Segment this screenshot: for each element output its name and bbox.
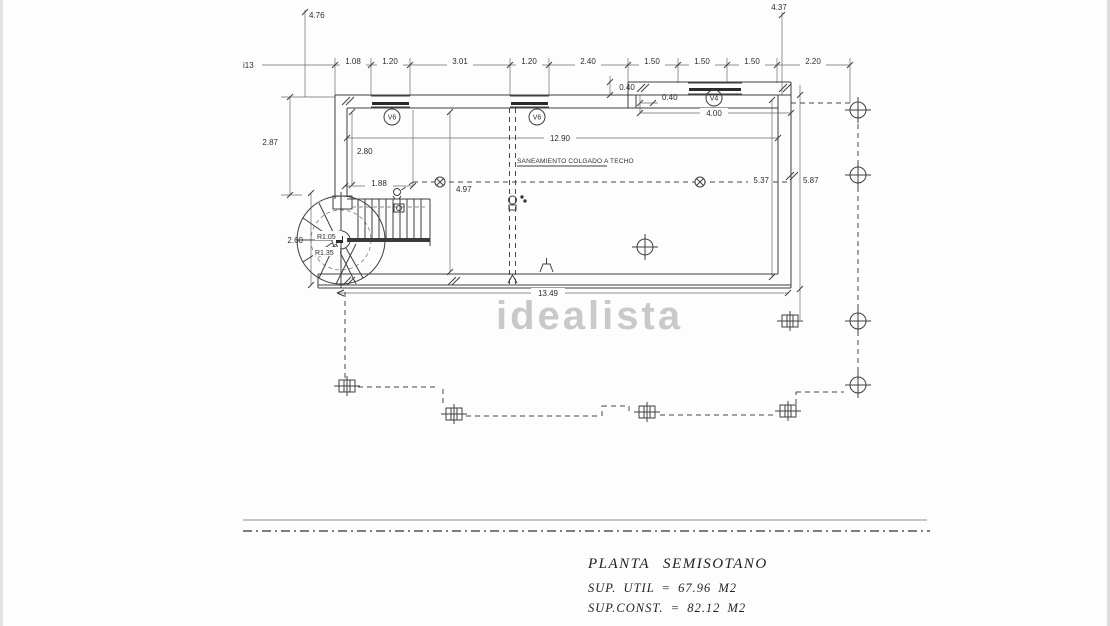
dim-porch-width: 4.00	[706, 109, 722, 118]
dim-edge-partial: i13	[243, 61, 254, 70]
overhang-outline	[334, 97, 871, 424]
dim-interior-width: 12.90	[550, 134, 571, 143]
window-tag-v6b: V6	[533, 115, 542, 122]
dim-interior-depth: 4.97	[456, 185, 472, 194]
saneamiento-note: SANEAMIENTO COLGADO A TECHO	[517, 158, 634, 165]
dim-top-8: 1.50	[744, 57, 760, 66]
dim-top-4: 1.20	[521, 57, 537, 66]
title-block: PLANTA SEMISOTANO SUP. UTIL = 67.96 M2 S…	[588, 556, 768, 621]
drainage-lines	[400, 108, 791, 284]
dim-left-column: 4.76	[309, 11, 325, 20]
dim-left-outer: 2.87	[262, 138, 278, 147]
windows	[371, 83, 742, 126]
dim-radius-outer: R1.35	[315, 250, 334, 257]
dim-spiral-depth: 2.60	[287, 236, 303, 245]
dim-step-a: 0.40	[619, 83, 635, 92]
section-line	[243, 520, 930, 531]
dim-step-b: 0.40	[662, 93, 678, 102]
idealista-watermark: idealista	[496, 294, 683, 338]
window-tag-v6a: V6	[388, 115, 397, 122]
floor-plan-scan: 1.08 1.20 3.01 1.20 2.40 1.50 1.50 1.50 …	[0, 0, 1110, 626]
window-tag-v4: V4	[710, 96, 719, 103]
dim-right-outer: 5.87	[803, 176, 819, 185]
dim-top-9: 2.20	[805, 57, 821, 66]
dim-top-2: 1.20	[382, 57, 398, 66]
dim-top-6: 1.50	[644, 57, 660, 66]
built-area: SUP.CONST. = 82.12 M2	[588, 601, 768, 616]
dim-right-inner: 5.37	[753, 176, 769, 185]
dim-top-7: 1.50	[694, 57, 710, 66]
useful-area: SUP. UTIL = 67.96 M2	[588, 581, 768, 596]
dim-stair-width: 1.88	[371, 179, 387, 188]
dim-top-3: 3.01	[452, 57, 468, 66]
dimension-labels: 1.08 1.20 3.01 1.20 2.40 1.50 1.50 1.50 …	[243, 3, 826, 298]
dim-right-column: 4.37	[771, 3, 787, 12]
dim-top-5: 2.40	[580, 57, 596, 66]
plan-title: PLANTA SEMISOTANO	[588, 556, 768, 573]
dim-radius-inner: R1.05	[317, 234, 336, 241]
straight-staircase	[347, 189, 430, 247]
dim-top-1: 1.08	[345, 57, 361, 66]
dim-left-inner: 2.80	[357, 147, 373, 156]
column-markers	[632, 234, 658, 260]
